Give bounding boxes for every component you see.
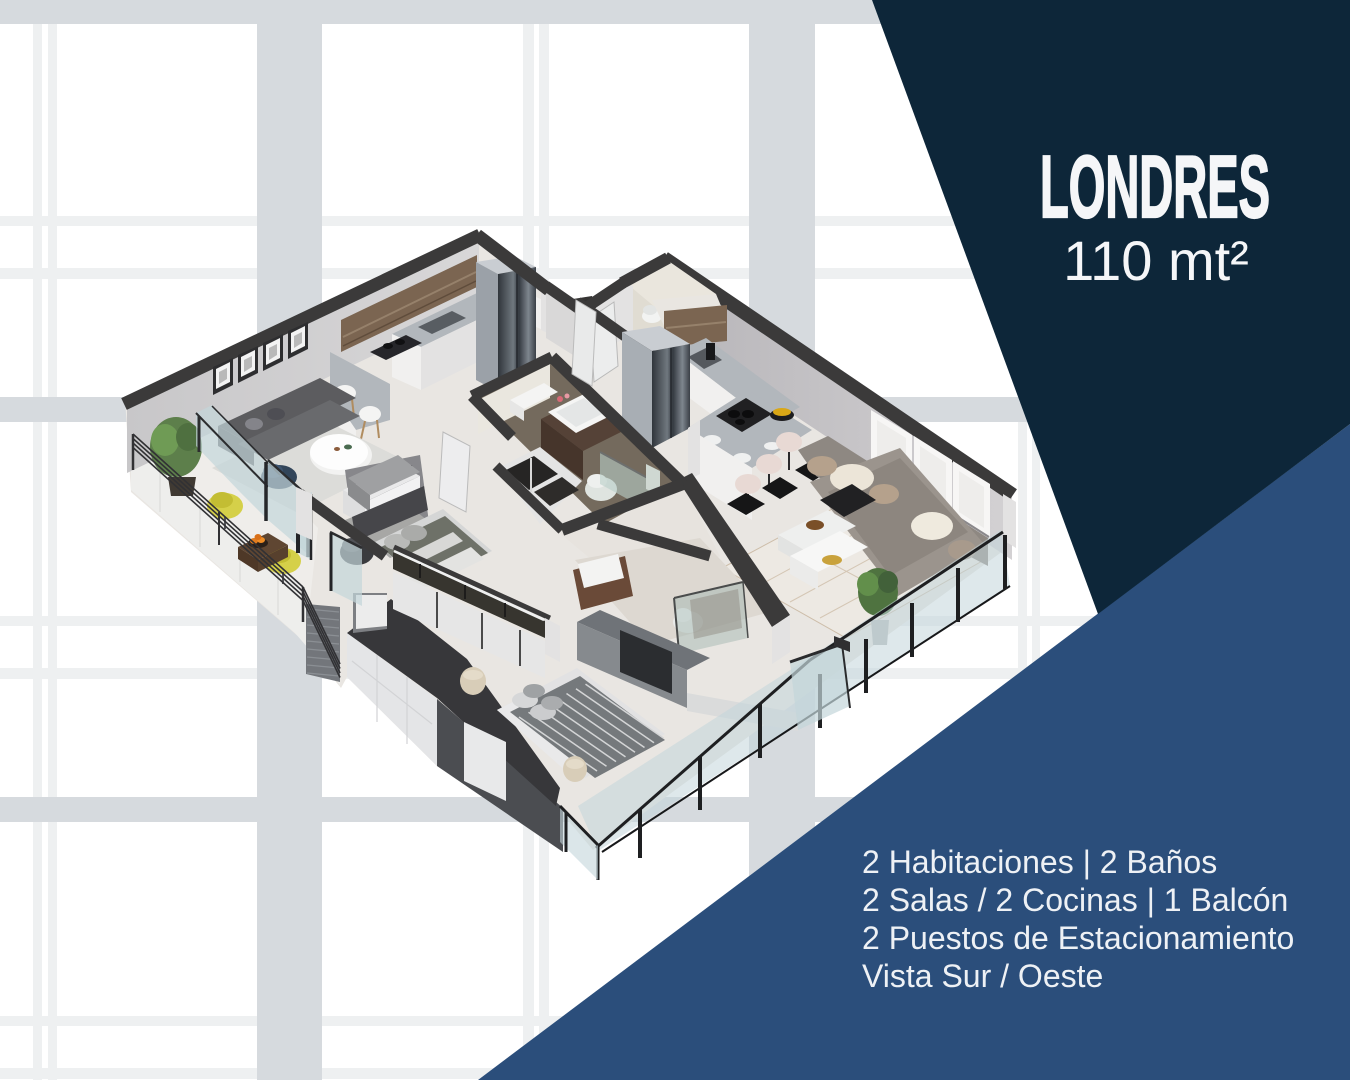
- svg-text:2 Puestos de Estacionamiento: 2 Puestos de Estacionamiento: [862, 920, 1294, 956]
- svg-text:110 mt²: 110 mt²: [1063, 229, 1249, 292]
- svg-text:LONDRES: LONDRES: [1040, 137, 1270, 236]
- svg-text:2 Habitaciones | 2 Baños: 2 Habitaciones | 2 Baños: [862, 844, 1217, 880]
- svg-text:2 Salas / 2 Cocinas | 1 Balcón: 2 Salas / 2 Cocinas | 1 Balcón: [862, 882, 1288, 918]
- svg-text:Vista Sur / Oeste: Vista Sur / Oeste: [862, 958, 1103, 994]
